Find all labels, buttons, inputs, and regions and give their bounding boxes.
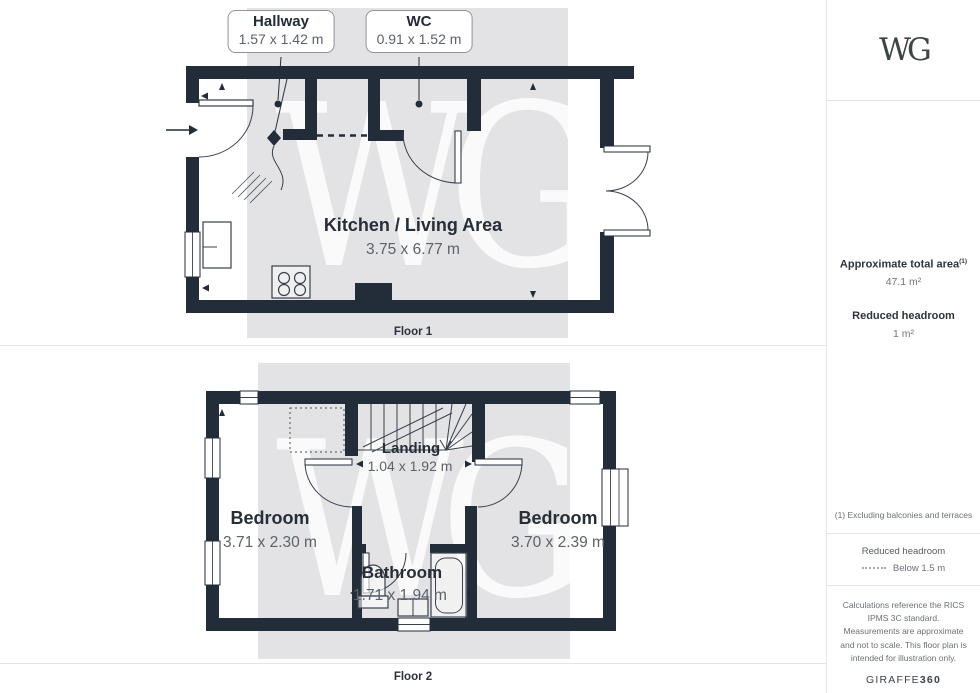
floorplan-page: WG bbox=[0, 0, 980, 693]
logo-section: WG bbox=[827, 0, 980, 101]
callout-hallway-title: Hallway bbox=[239, 13, 324, 31]
floor2-plan-drawing bbox=[0, 346, 826, 693]
floor1-panel: WG bbox=[0, 0, 826, 346]
kitchen-living-dims: 3.75 x 6.77 m bbox=[366, 241, 460, 259]
legend-value: Below 1.5 m bbox=[893, 563, 945, 574]
wg-logo: WG bbox=[879, 32, 928, 68]
bathroom-label: Bathroom bbox=[362, 563, 442, 583]
callout-connectors bbox=[275, 57, 423, 108]
floor1-window bbox=[185, 232, 200, 277]
callout-wc: WC 0.91 x 1.52 m bbox=[366, 10, 473, 53]
total-area-label: Approximate total area bbox=[840, 258, 959, 270]
entrance-door bbox=[199, 100, 253, 157]
callout-hallway: Hallway 1.57 x 1.42 m bbox=[228, 10, 335, 53]
reduced-headroom-value: 1 m² bbox=[893, 328, 914, 341]
dotted-line-icon bbox=[862, 567, 886, 569]
giraffe360-credit: GIRAFFE360 bbox=[839, 674, 968, 686]
kitchen-living-label: Kitchen / Living Area bbox=[324, 215, 502, 236]
area-summary-section: Approximate total area(1) 47.1 m² Reduce… bbox=[827, 100, 980, 496]
bedroom-right-label: Bedroom bbox=[518, 508, 597, 529]
total-area-value: 47.1 m² bbox=[886, 276, 922, 289]
callout-wc-dims: 0.91 x 1.52 m bbox=[377, 31, 462, 48]
stove-icon bbox=[272, 266, 310, 298]
wardrobe-dashed bbox=[290, 408, 344, 452]
callout-hallway-dims: 1.57 x 1.42 m bbox=[239, 31, 324, 48]
legend-title: Reduced headroom bbox=[862, 545, 945, 558]
info-sidebar: WG Approximate total area(1) 47.1 m² Red… bbox=[826, 0, 980, 693]
callout-wc-title: WC bbox=[377, 13, 462, 31]
bedroom-right-door bbox=[475, 459, 522, 507]
reduced-headroom-heading: Reduced headroom bbox=[852, 309, 955, 323]
legend-row: Below 1.5 m bbox=[862, 563, 945, 574]
credit-number: 360 bbox=[920, 674, 941, 686]
footnote-text: (1) Excluding balconies and terraces bbox=[835, 510, 973, 520]
entry-arrow-icon bbox=[166, 125, 198, 135]
legend-section: Reduced headroom Below 1.5 m bbox=[827, 533, 980, 586]
floor2-panel: WG bbox=[0, 346, 826, 693]
bedroom-left-label: Bedroom bbox=[230, 508, 309, 529]
credit-brand: GIRAFFE bbox=[866, 674, 920, 686]
bathroom-dims: 1.71 x 1.94 m bbox=[353, 587, 447, 605]
landing-label: Landing bbox=[382, 440, 440, 457]
disclaimer-section: Calculations reference the RICS IPMS 3C … bbox=[827, 585, 980, 693]
floor1-caption: Floor 1 bbox=[0, 326, 826, 338]
plan-area: WG bbox=[0, 0, 826, 693]
bedroom-left-dims: 3.71 x 2.30 m bbox=[223, 534, 317, 552]
wall-markers bbox=[201, 83, 607, 298]
total-area-heading: Approximate total area(1) bbox=[840, 255, 967, 272]
floor2-caption: Floor 2 bbox=[0, 671, 826, 683]
footnote-section: (1) Excluding balconies and terraces bbox=[827, 497, 980, 534]
footnote-marker: (1) bbox=[959, 258, 967, 265]
floor2-footer: Floor 2 bbox=[0, 663, 826, 693]
wc-door bbox=[403, 131, 461, 183]
kitchen-unit bbox=[203, 222, 231, 268]
bedroom-right-dims: 3.70 x 2.39 m bbox=[511, 534, 605, 552]
bedroom-left-door bbox=[305, 459, 352, 507]
french-doors bbox=[604, 146, 650, 236]
doormat-hatch bbox=[232, 172, 272, 203]
disclaimer-text: Calculations reference the RICS IPMS 3C … bbox=[839, 599, 968, 665]
landing-dims: 1.04 x 1.92 m bbox=[368, 458, 453, 474]
